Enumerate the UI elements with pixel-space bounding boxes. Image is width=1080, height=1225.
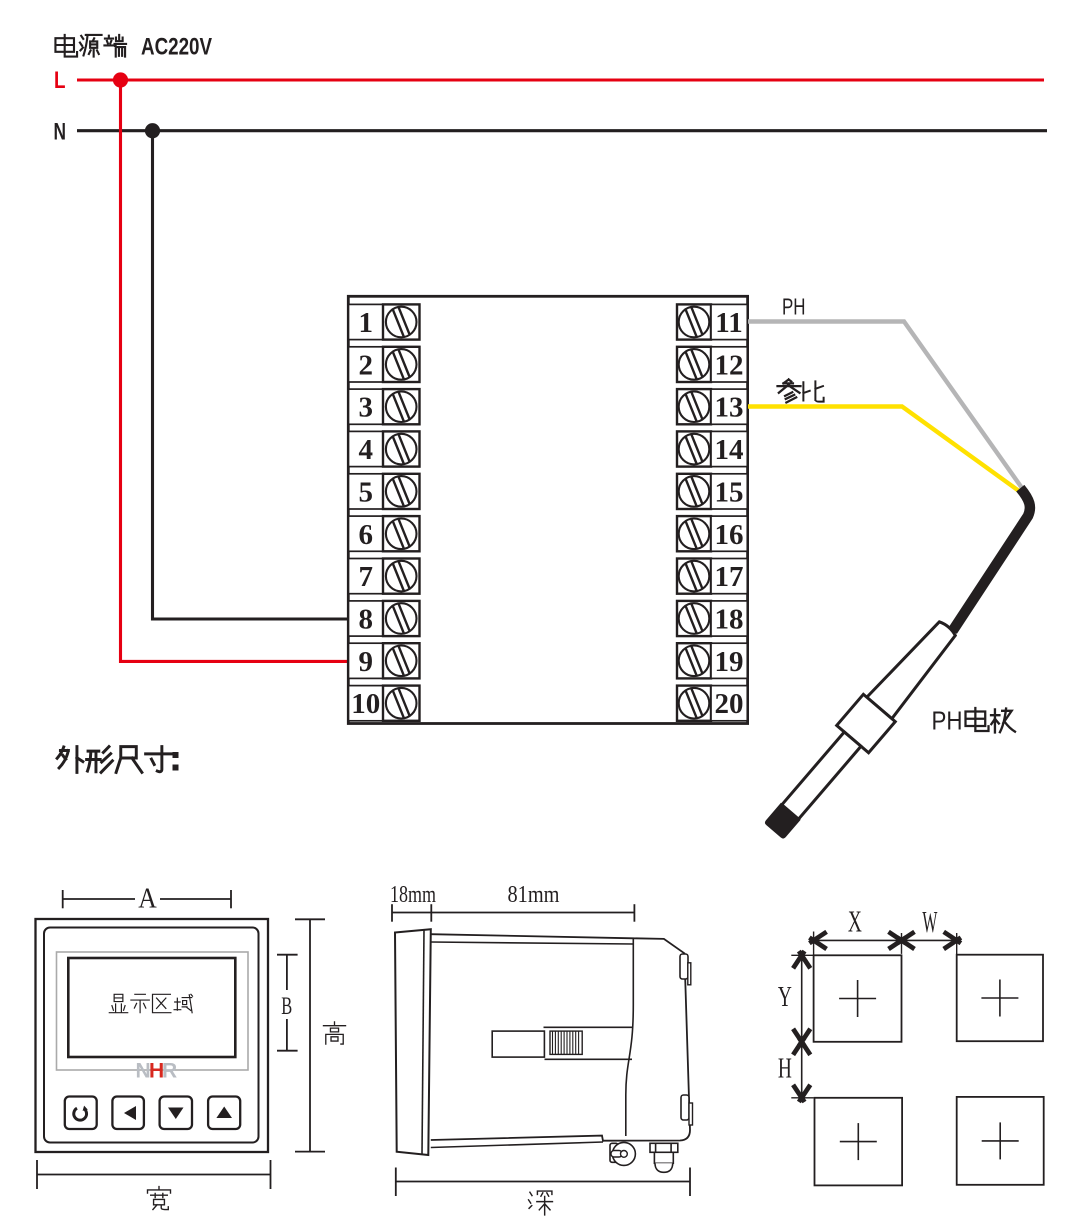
svg-text:W: W	[922, 904, 937, 939]
svg-text:3: 3	[358, 392, 373, 424]
svg-text:2: 2	[358, 349, 373, 381]
svg-text:L: L	[54, 67, 66, 94]
svg-text:10: 10	[351, 688, 380, 720]
svg-text:18: 18	[715, 604, 744, 636]
svg-text:AC220V: AC220V	[141, 34, 212, 61]
svg-text:12: 12	[715, 349, 744, 381]
svg-text:6: 6	[358, 519, 373, 551]
svg-text:PH: PH	[932, 706, 963, 736]
svg-text:7: 7	[358, 561, 373, 593]
svg-text:15: 15	[715, 476, 744, 508]
svg-text:20: 20	[715, 688, 744, 720]
svg-text:1: 1	[358, 307, 373, 339]
svg-text:Y: Y	[778, 981, 792, 1013]
svg-text:B: B	[281, 991, 292, 1020]
svg-text:4: 4	[358, 434, 373, 466]
svg-text:A: A	[138, 883, 157, 915]
svg-text:9: 9	[358, 646, 373, 678]
svg-text:16: 16	[715, 519, 744, 551]
svg-text:13: 13	[715, 392, 744, 424]
svg-text:N: N	[54, 119, 67, 146]
svg-text:PH: PH	[782, 294, 806, 320]
svg-text:11: 11	[715, 307, 742, 339]
svg-text:5: 5	[358, 476, 373, 508]
svg-text:81mm: 81mm	[508, 882, 560, 908]
svg-text:R: R	[162, 1060, 177, 1083]
svg-text:8: 8	[358, 604, 373, 636]
svg-text:X: X	[848, 903, 862, 938]
svg-text:17: 17	[715, 561, 744, 593]
svg-text:H: H	[778, 1053, 792, 1085]
svg-text:19: 19	[715, 646, 744, 678]
svg-text:14: 14	[715, 434, 744, 466]
svg-text:18mm: 18mm	[390, 882, 436, 908]
